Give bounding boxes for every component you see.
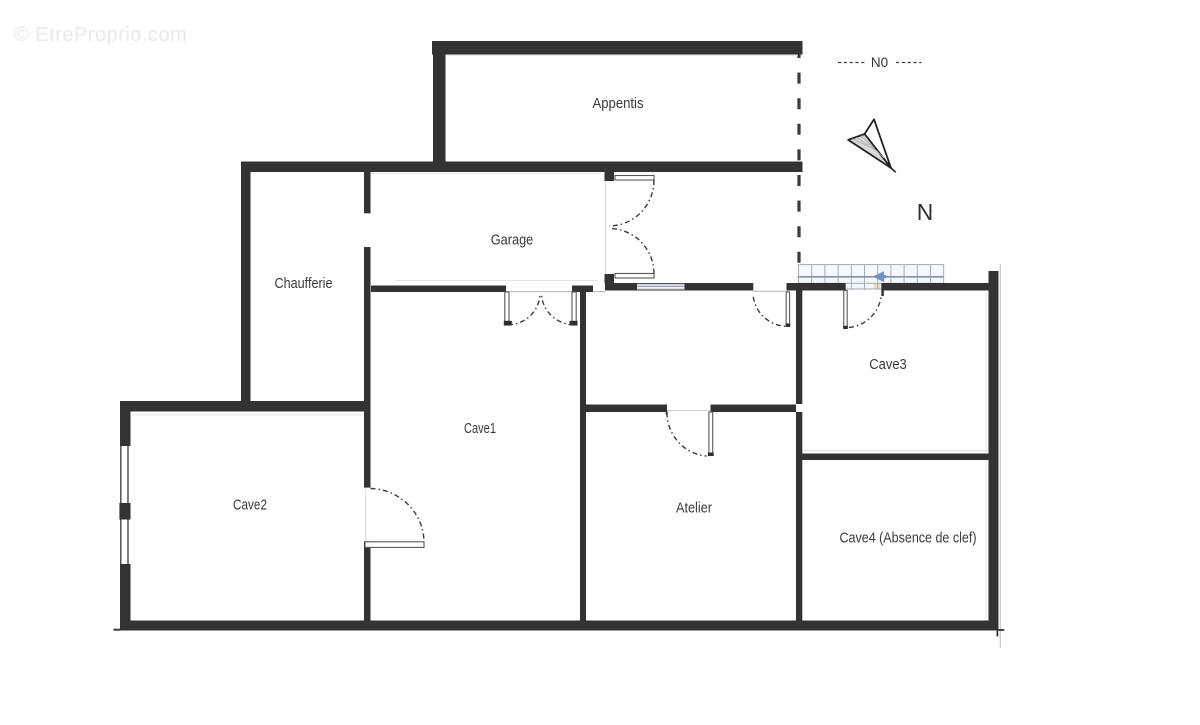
svg-text:Garage: Garage <box>491 233 534 249</box>
svg-text:N: N <box>917 199 934 225</box>
svg-text:Cave3: Cave3 <box>869 357 907 373</box>
svg-text:N0: N0 <box>871 55 888 70</box>
svg-text:Cave1: Cave1 <box>464 421 496 437</box>
svg-text:Atelier: Atelier <box>676 501 712 517</box>
svg-text:Cave4 (Absence de clef): Cave4 (Absence de clef) <box>840 531 977 547</box>
svg-text:Cave2: Cave2 <box>233 498 267 514</box>
svg-text:Appentis: Appentis <box>593 96 644 112</box>
svg-text:Chaufferie: Chaufferie <box>275 276 333 292</box>
svg-text:© EtreProprio.com: © EtreProprio.com <box>14 24 187 46</box>
